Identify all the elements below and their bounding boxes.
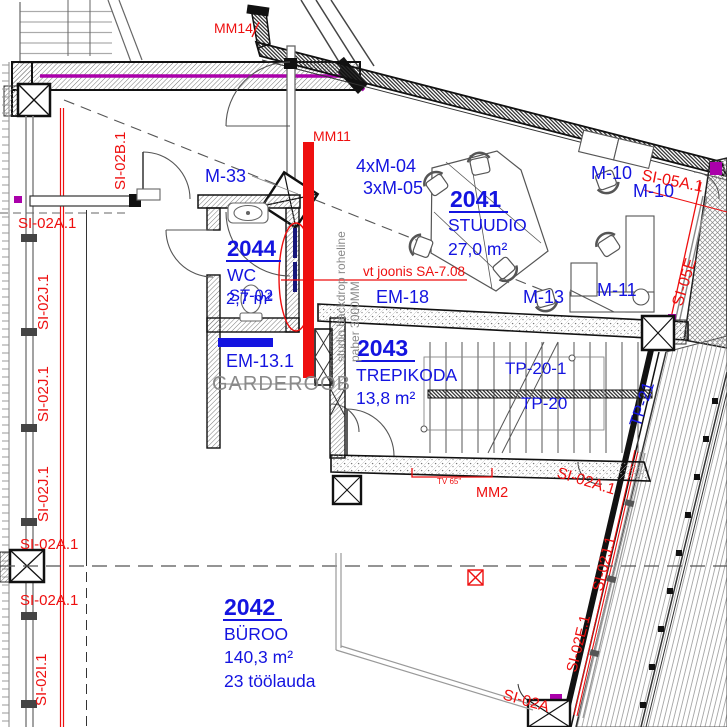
marker-tv: TV 65" xyxy=(437,477,461,486)
room-2044-number: 2044 xyxy=(227,236,277,261)
code-si02a1-left1: SI-02A.1 xyxy=(20,536,78,553)
tag-tp201: TP-20-1 xyxy=(505,359,566,378)
navy-inset-wall xyxy=(293,228,297,258)
room-2042-number: 2042 xyxy=(224,594,275,620)
code-si02j1-b: SI-02J.1 xyxy=(35,366,52,422)
tag-m04: 4xM-04 xyxy=(356,156,416,176)
tag-em18: EM-18 xyxy=(376,287,429,307)
label-garderoob: GARDEROOB xyxy=(212,373,351,395)
room-2043-area: 13,8 m² xyxy=(356,388,415,408)
marker-mm14: MM14 xyxy=(214,20,253,36)
room-2043-name: TREPIKODA xyxy=(356,365,457,385)
note-backdrop-2: paber 3000MM xyxy=(348,281,362,362)
door-arc-wc xyxy=(166,230,213,277)
marker-mm2: MM2 xyxy=(476,485,508,501)
room-2044-name: WC xyxy=(227,265,256,285)
tag-m33: M-33 xyxy=(205,166,246,186)
tag-m11: M-11 xyxy=(597,280,637,300)
column-top-left xyxy=(4,84,50,116)
code-si02j1-a: SI-02J.1 xyxy=(35,274,52,330)
magenta-accent-left xyxy=(14,196,22,203)
note-backdrop-1: studio backdrop roheline xyxy=(334,231,348,362)
code-si02a1-left2: SI-02A.1 xyxy=(20,592,78,609)
room-2043-number: 2043 xyxy=(357,335,408,361)
blue-fixture-bar xyxy=(218,338,273,347)
code-si02i1: SI-02I.1 xyxy=(33,653,50,706)
room-2041-area: 27,0 m² xyxy=(448,239,507,259)
code-si02j1-c: SI-02J.1 xyxy=(35,466,52,522)
code-si02b1: SI-02B.1 xyxy=(112,132,129,190)
room-2042-note: 23 töölauda xyxy=(224,671,316,691)
code-si02a1-topleft: SI-02A.1 xyxy=(18,215,76,232)
floor-plan-canvas: 2041 STUUDIO 27,0 m² 2042 BÜROO 140,3 m²… xyxy=(0,0,727,727)
note-vt-joonis: vt joonis SA-7.08 xyxy=(363,264,465,279)
red-marker-box xyxy=(468,570,483,585)
room-2042-area: 140,3 m² xyxy=(224,647,293,667)
tag-m10-a: M-10 xyxy=(591,163,632,183)
room-2041-name: STUUDIO xyxy=(448,215,527,235)
tag-m13: M-13 xyxy=(523,287,564,307)
exterior-stair-upper-left xyxy=(20,0,142,64)
code-si02a-bottom: SI-02A xyxy=(501,687,552,717)
tag-em131: EM-13.1 xyxy=(226,351,294,371)
tag-m05: 3xM-05 xyxy=(363,178,423,198)
tag-tp20: TP-20 xyxy=(521,394,567,413)
room-2042-name: BÜROO xyxy=(224,624,288,644)
marker-mm11: MM11 xyxy=(313,128,351,144)
text-labels: 2041 STUUDIO 27,0 m² 2042 BÜROO 140,3 m²… xyxy=(18,20,705,716)
column-2043-right xyxy=(642,316,686,350)
room-2041-number: 2041 xyxy=(450,186,501,212)
corridor-cabinet xyxy=(137,189,160,200)
code-si02e1: SI-02E.1 xyxy=(563,613,594,674)
room-2044-overlay: ST-02 xyxy=(229,287,273,305)
magenta-accent-topright xyxy=(710,162,722,175)
